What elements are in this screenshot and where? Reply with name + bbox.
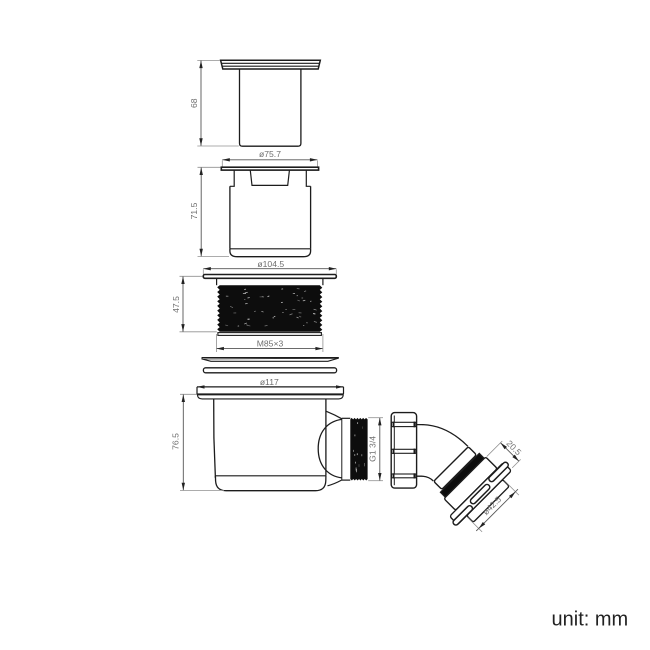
svg-text:68: 68	[189, 98, 199, 108]
svg-text:ø104.5: ø104.5	[257, 259, 284, 269]
svg-text:71.5: 71.5	[189, 202, 199, 219]
svg-text:ø117: ø117	[260, 377, 279, 387]
svg-text:unit: mm: unit: mm	[552, 608, 629, 630]
svg-text:20.5: 20.5	[504, 438, 523, 457]
svg-text:ø75.7: ø75.7	[259, 149, 281, 159]
svg-text:G1 3/4: G1 3/4	[367, 436, 377, 462]
svg-text:47.5: 47.5	[171, 296, 181, 313]
svg-text:M85×3: M85×3	[257, 339, 284, 349]
svg-text:76.5: 76.5	[170, 433, 180, 450]
